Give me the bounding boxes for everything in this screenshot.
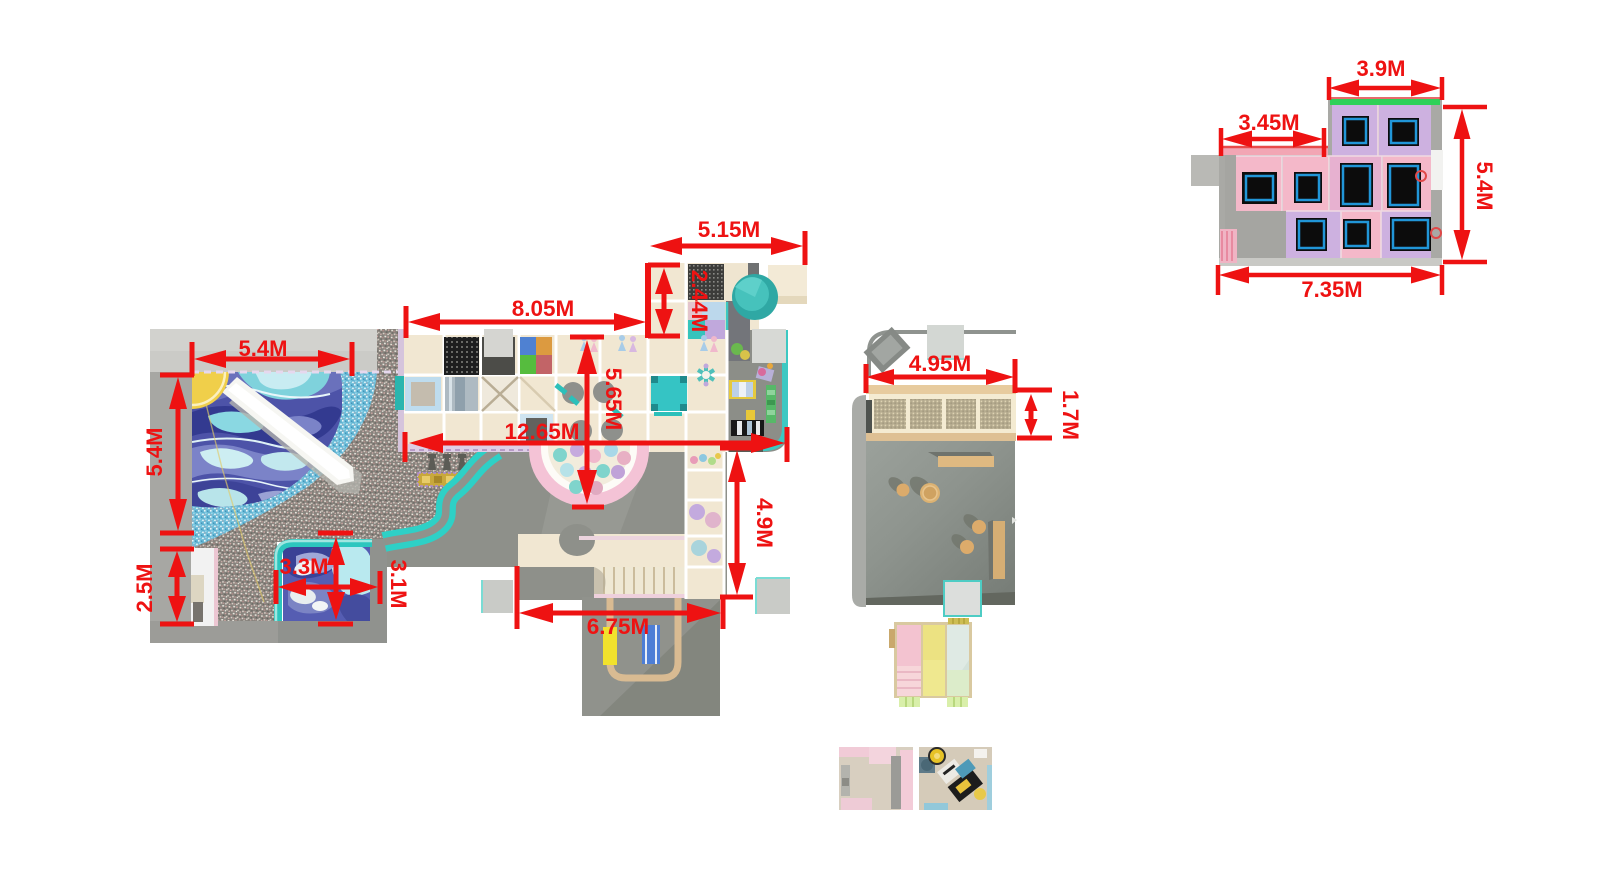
svg-text:1.7M: 1.7M	[1058, 390, 1083, 440]
svg-text:2.5M: 2.5M	[132, 564, 157, 613]
svg-text:7.35M: 7.35M	[1301, 277, 1362, 302]
svg-text:8.05M: 8.05M	[512, 296, 575, 321]
svg-text:3.9M: 3.9M	[1357, 56, 1406, 81]
svg-text:3.1M: 3.1M	[386, 560, 411, 609]
svg-text:5.4M: 5.4M	[142, 428, 167, 477]
svg-text:5.4M: 5.4M	[239, 336, 288, 361]
svg-text:5.65M: 5.65M	[601, 368, 626, 431]
svg-text:5.15M: 5.15M	[698, 217, 761, 242]
svg-text:12.65M: 12.65M	[504, 419, 579, 444]
svg-text:3.3M: 3.3M	[280, 554, 329, 579]
svg-text:5.4M: 5.4M	[1472, 162, 1497, 211]
svg-text:2.44M: 2.44M	[687, 270, 712, 333]
svg-text:3.45M: 3.45M	[1238, 110, 1299, 135]
svg-text:6.75M: 6.75M	[587, 614, 650, 639]
svg-text:4.95M: 4.95M	[909, 351, 972, 376]
svg-text:4.9M: 4.9M	[752, 498, 777, 548]
